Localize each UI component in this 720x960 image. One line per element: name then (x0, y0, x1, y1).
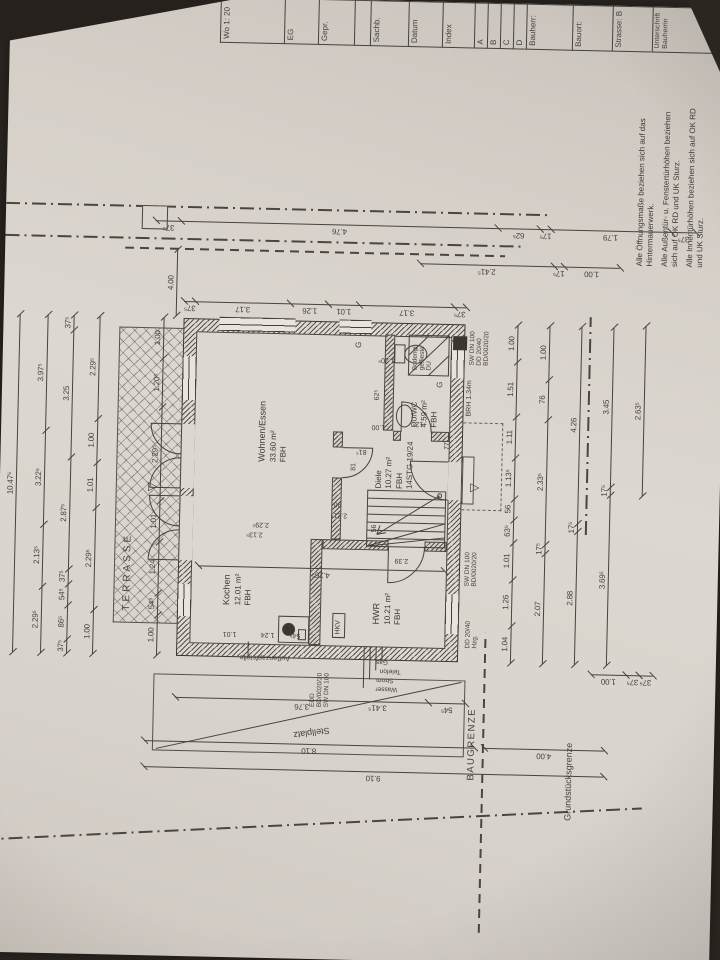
dimension-segment: 1.00 (564, 267, 620, 268)
dimension-label: 1.00 (153, 330, 162, 345)
title-block-cell: B (487, 3, 501, 49)
dimension-label: 2.88 (565, 591, 574, 606)
dimension-label: 1.00 (507, 336, 516, 351)
dim-label: 2.21⁵ (331, 511, 348, 519)
dimension-label: 1.79 (603, 233, 618, 242)
title-block-cell (354, 0, 371, 46)
dimension-label: 37⁵ (640, 678, 652, 687)
dimension-segment: 1.26 (291, 303, 329, 304)
dimension-label: 1.51 (506, 382, 515, 397)
construction-notes: Alle Öffnungsmaße beziehen sich auf das … (635, 98, 714, 268)
dim-label: 3.41⁵ (368, 702, 387, 711)
plan-sheet: TERRASSE (0, 0, 720, 960)
dimension-segment: 1.01 (329, 304, 359, 305)
note-openings: Alle Öffnungsmaße beziehen sich auf das … (635, 98, 658, 266)
dim-label: 90 (334, 500, 342, 508)
dimension-label: 4.26 (569, 418, 578, 433)
terrace-entrance-arrow: ▽ (146, 482, 160, 492)
dimension-label: 37⁵ (454, 310, 466, 319)
dimension-label: 3.69⁵ (598, 571, 607, 589)
dimension-label: 2.33⁵ (536, 473, 545, 491)
dimension-segment: 1.00 (591, 674, 627, 675)
title-block-cell: Index (442, 2, 475, 49)
grundstuecksgrenze-label: Grundstücksgrenze (562, 743, 574, 821)
dimension-label: 10.47⁵ (6, 472, 15, 494)
dimension-label: 1.00 (584, 270, 599, 279)
pipe-label: BD/0020/20 (483, 331, 491, 365)
dimension-label: 2.29⁵ (150, 445, 159, 463)
dimension-label: 2.41⁵ (478, 267, 496, 276)
utility-label: Strom (376, 676, 394, 684)
title-block-cell: C (500, 3, 514, 49)
dimension-label: 37⁵ (162, 223, 174, 232)
dimension-label: 1.20⁵ (152, 374, 161, 392)
dim-label: 2.29⁵ (252, 520, 269, 528)
dim-label: DU (426, 361, 433, 371)
dimension-label: 1.13⁵ (504, 469, 513, 487)
dimension-label: 4.26⁵ (312, 570, 330, 579)
dimension-label: 37⁵ (677, 235, 689, 244)
title-block-cell: Bauort: (572, 5, 613, 52)
utility-label: Wasser (375, 685, 397, 693)
dim-label: 81⁵ (356, 447, 367, 455)
window-mark-g: G (355, 342, 364, 348)
title-block-cell: Wo 1: 20 (220, 0, 285, 44)
plan-linework (0, 0, 720, 960)
dimension-label: 17⁵ (567, 522, 576, 534)
dimension-label: 4.00 (166, 275, 175, 290)
door-arc (388, 547, 425, 584)
title-block-cell: A (474, 2, 488, 48)
dimension-label: 37⁵ (184, 303, 196, 312)
dimension-label: 2.87⁵ (59, 504, 68, 522)
dim-label: 2.13⁵ (246, 530, 263, 538)
dim-label: 62⁵ (374, 390, 382, 401)
dimension-label: 37⁵ (63, 317, 72, 329)
dimension-label: 2.07 (533, 601, 542, 616)
dimension-label: 1.00 (146, 627, 155, 642)
dim-label: BRH 1.34m (465, 380, 474, 416)
dimension-label: 54⁵ (147, 598, 156, 610)
pipe-label: SW DN 100 (323, 673, 331, 707)
room-label-hwr: HWR 10.21 m² FBH (371, 593, 404, 625)
dimension-label: 17⁵ (539, 232, 551, 241)
door-arc (148, 529, 179, 560)
dimension-segment: 62⁵ (498, 228, 540, 229)
room-label-diele: Diele 10.27 m² FBH 14STG 19/24 (374, 441, 417, 490)
dimension-label: 1.01 (502, 553, 511, 568)
dimension-label: 76 (538, 395, 547, 404)
dim-label: 1.01 (223, 629, 237, 637)
dimension-label: 1.00 (87, 433, 96, 448)
dimension-segment: 37⁵ (156, 220, 181, 221)
room-label-wohnen-essen: Wohnen/Essen 33.60 m² FBH (256, 401, 290, 463)
dimension-label: 3.76 (294, 702, 309, 711)
dimension-label: 2.29⁵ (84, 549, 93, 567)
dimension-label: 1.04 (500, 637, 509, 652)
dimension-label: 17⁵ (534, 543, 543, 555)
dim-label: 2.39 (394, 556, 408, 564)
dimension-label: 1.26 (501, 595, 510, 610)
entrance-arrow: ▽ (468, 483, 482, 493)
dimension-label: 63⁵ (503, 525, 512, 537)
pipe-label: Hzg. (471, 635, 479, 649)
dim-label: 81 (350, 463, 358, 471)
dimension-label: 1.01 (336, 307, 351, 316)
dimension-label: 1.00 (82, 624, 91, 639)
title-block-cell: Sachb. (370, 0, 409, 47)
dimension-label: 1.01 (86, 477, 95, 492)
dim-label: 1.00 (372, 422, 386, 430)
hkv-label: HKV (334, 620, 342, 635)
dimension-label: 3.25 (62, 386, 71, 401)
dimension-label: 2.29⁵ (31, 610, 40, 628)
dim-label: 56 (371, 524, 379, 532)
dimension-segment: 37⁵ (671, 232, 696, 233)
dim-label: 77 (444, 442, 452, 450)
utility-label: Gas (376, 658, 388, 666)
dimension-label: 1.00 (539, 345, 548, 360)
dim-label: 1.24 (261, 630, 275, 638)
dimension-label: 86⁵ (57, 616, 66, 628)
dimension-label: 56 (503, 505, 512, 514)
dimension-label: 3.22⁵ (34, 468, 43, 486)
dimension-label: 2.29⁵ (88, 358, 97, 376)
dimension-label: 3.17 (399, 308, 414, 317)
pipe-label: BD/0020/20 (471, 552, 479, 586)
title-block-cell: Gepr. (318, 0, 355, 46)
utility-label: Telefon (380, 667, 401, 675)
outdoor-tap-label: Außenzapfstelle (240, 652, 290, 661)
dimension-label: 54⁵ (441, 705, 453, 714)
dimension-label: 4.76 (332, 227, 347, 236)
dimension-label: 54⁵ (57, 588, 66, 600)
dimension-segment: 54⁵ (428, 703, 465, 704)
dimension-label: 4.00 (536, 752, 551, 761)
title-block-cell: Strasse: B (612, 6, 653, 53)
title-block-cell: D (513, 3, 527, 49)
window-mark-g: G (436, 381, 445, 387)
dimension-label: 1.01 (149, 514, 158, 529)
dimension-label: 1.11 (505, 430, 514, 444)
dimension-label: 2.63⁵ (633, 402, 642, 420)
title-block-cell: Bauherr: (526, 4, 573, 51)
title-block-cell: EG (284, 0, 319, 45)
dimension-label: 62⁵ (513, 231, 525, 240)
dimension-label: 17⁵ (553, 269, 565, 278)
dimension-label: 3.17 (235, 305, 250, 314)
dim-label: 12⁵ (413, 419, 424, 427)
dimension-label: 1.26 (302, 306, 317, 315)
dim-label: 54⁵ (290, 631, 301, 639)
wc-icon (395, 345, 405, 363)
dimension-label: 2.13⁵ (32, 546, 41, 564)
dimension-label: 1.24 (148, 560, 157, 575)
dimension-label: 3.97⁵ (36, 363, 45, 381)
room-label-kochen: Kochen 12.01 m² FBH (221, 573, 254, 605)
dimension-label: 8.10 (301, 746, 316, 755)
dimension-label: 9.10 (366, 774, 381, 783)
dimension-label: 1.00 (601, 677, 616, 686)
dimension-label: 3.45 (602, 400, 611, 415)
dim-label: 1.20⁵ (378, 356, 395, 364)
title-block-cell: Datum (408, 1, 443, 48)
dimension-label: 37⁵ (627, 678, 639, 687)
floor-plan-photo: TERRASSE (0, 0, 720, 960)
